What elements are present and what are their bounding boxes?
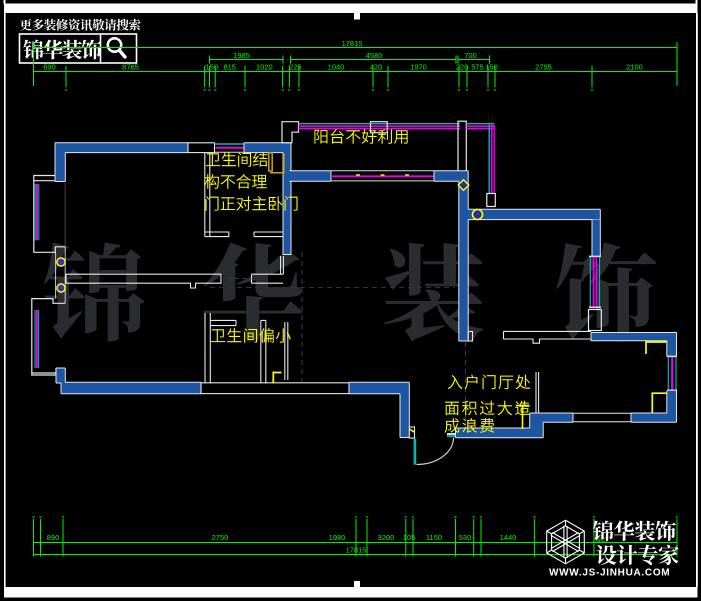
svg-text:700: 700 [464, 51, 477, 60]
svg-text:8765: 8765 [122, 63, 139, 72]
svg-text:420: 420 [370, 63, 383, 72]
svg-text:150: 150 [485, 63, 498, 72]
svg-text:1980: 1980 [329, 533, 346, 542]
svg-text:1970: 1970 [410, 63, 427, 72]
svg-text:150: 150 [206, 63, 219, 72]
svg-text:1040: 1040 [328, 63, 345, 72]
svg-text:575: 575 [471, 63, 484, 72]
svg-text:2100: 2100 [626, 63, 643, 72]
svg-text:890: 890 [47, 533, 60, 542]
svg-text:530: 530 [459, 533, 472, 542]
svg-text:105: 105 [403, 533, 416, 542]
svg-text:2750: 2750 [212, 533, 229, 542]
svg-text:1020: 1020 [256, 63, 273, 72]
svg-text:1150: 1150 [426, 533, 442, 542]
svg-text:220: 220 [456, 63, 469, 72]
svg-text:4580: 4580 [366, 51, 383, 60]
svg-text:225: 225 [289, 63, 302, 72]
svg-text:WWW.JS-JINHUA.COM: WWW.JS-JINHUA.COM [549, 568, 670, 579]
svg-text:17815: 17815 [342, 39, 363, 48]
svg-text:17815: 17815 [346, 546, 367, 555]
svg-text:1440: 1440 [500, 533, 517, 542]
svg-text:815: 815 [223, 63, 236, 72]
svg-text:3200: 3200 [378, 533, 395, 542]
svg-text:690: 690 [43, 63, 56, 72]
svg-text:1985: 1985 [233, 51, 250, 60]
svg-text:2795: 2795 [535, 63, 552, 72]
